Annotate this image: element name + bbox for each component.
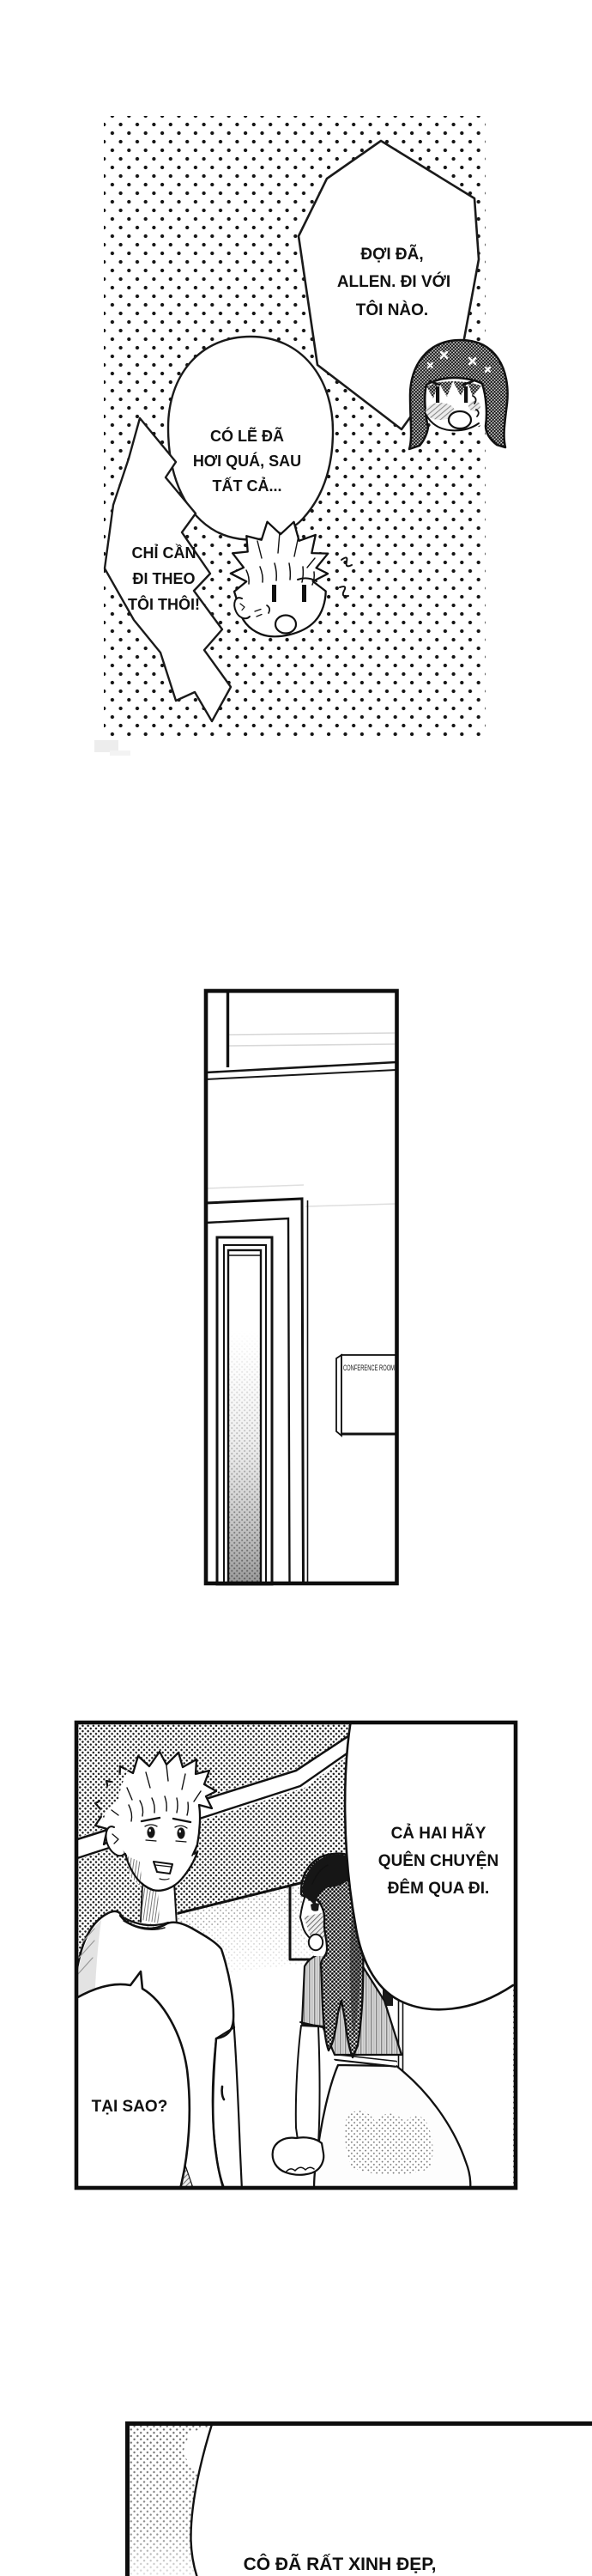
svg-text:ĐI THEO: ĐI THEO: [132, 570, 195, 587]
svg-text:TÔI NÀO.: TÔI NÀO.: [356, 301, 428, 319]
svg-text:CÔ ĐÃ RẤT XINH ĐẸP,: CÔ ĐÃ RẤT XINH ĐẸP,: [244, 2554, 437, 2574]
svg-text:ĐỢI ĐÃ,: ĐỢI ĐÃ,: [360, 245, 423, 264]
svg-text:TÔI THÔI!: TÔI THÔI!: [128, 595, 200, 613]
svg-text:CÓ LẼ ĐÃ: CÓ LẼ ĐÃ: [210, 427, 284, 445]
svg-text:HƠI QUÁ, SAU: HƠI QUÁ, SAU: [193, 452, 301, 470]
svg-text:ALLEN. ĐI VỚI: ALLEN. ĐI VỚI: [337, 272, 450, 291]
svg-text:TẠI SAO?: TẠI SAO?: [92, 2098, 168, 2116]
svg-text:CHỈ CẦN: CHỈ CẦN: [132, 544, 196, 562]
svg-text:QUÊN CHUYỆN: QUÊN CHUYỆN: [378, 1851, 498, 1870]
svg-text:TẤT CẢ...: TẤT CẢ...: [213, 477, 282, 495]
svg-text:ĐÊM QUA ĐI.: ĐÊM QUA ĐI.: [388, 1879, 490, 1898]
svg-text:CẢ HAI HÃY: CẢ HAI HÃY: [391, 1824, 486, 1843]
svg-text:CONFERENCE ROOM: CONFERENCE ROOM: [343, 1364, 395, 1372]
